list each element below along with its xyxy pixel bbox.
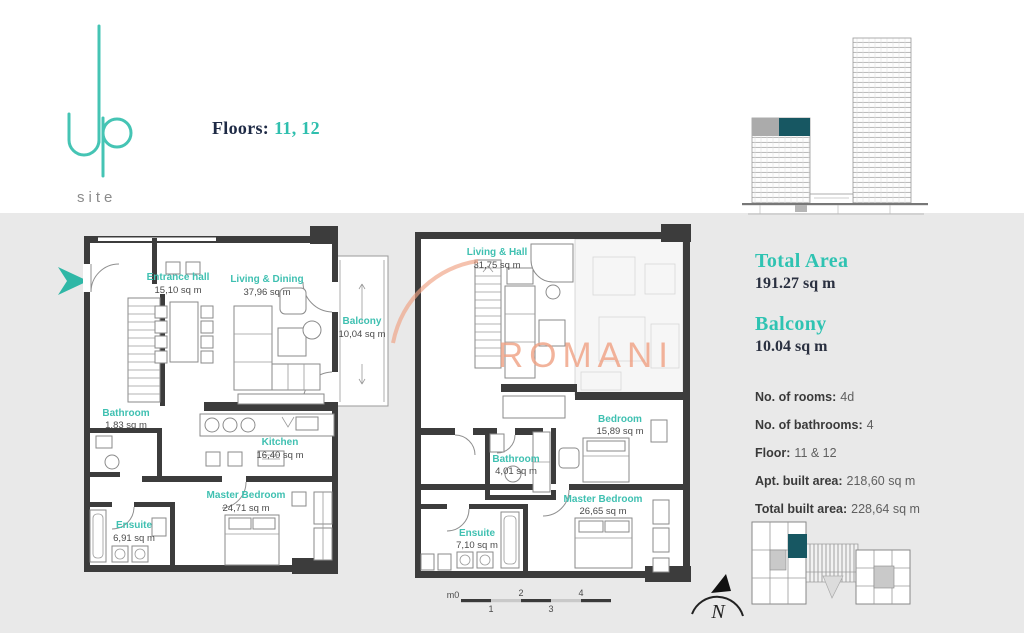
room-area: 15,10 sq m [155,285,202,296]
detail-row-floor: Floor:11 & 12 [755,446,985,460]
scale-mark: 4 [578,588,583,598]
scale-mark: 3 [548,604,553,614]
tv-bench [238,394,324,404]
floors-label: Floors: [212,118,269,138]
site-triangle [823,576,843,598]
floors-heading: Floors:11, 12 [212,118,320,139]
left-building-footprint [752,522,807,604]
double-height-void [575,239,683,395]
detail-row-apt-built-area: Apt. built area:218,60 sq m [755,474,985,488]
detail-row-rooms: No. of rooms:4d [755,390,985,404]
landing [503,396,565,418]
basement-block [795,205,807,212]
logo-site-text: site [77,189,116,206]
scale-bar: m0 1 2 3 4 [443,583,623,615]
room-label: Master Bedroom [564,494,643,505]
room-area: 37,96 sq m [244,287,291,298]
room-label: Kitchen [262,437,299,448]
short-tower-top-band [752,118,779,136]
north-compass-icon: N [686,568,750,628]
armchair [559,448,579,468]
room-area: 16,40 sq m [257,450,304,461]
wardrobe [651,420,667,442]
room-label: Bedroom [598,414,642,425]
tall-tower [853,38,911,204]
highlighted-floors-marker [779,118,810,136]
detail-value: 4d [840,390,854,404]
summary-panel: Total Area 191.27 sq m Balcony 10.04 sq … [755,250,985,530]
room-label: Bathroom [102,408,149,419]
scale-mark: 1 [488,604,493,614]
floor-plan-upper: Living & Hall 31,75 sq m Bedroom 15,89 s… [413,222,697,588]
floor-plan-lower: Entrance hall 15,10 sq m Living & Dining… [82,224,394,578]
site-key-plan [748,506,948,622]
logo-p-bowl [103,119,131,147]
room-area: 7,10 sq m [456,540,498,551]
floors-value: 11, 12 [274,118,320,138]
detail-value: 11 & 12 [794,446,836,460]
compass-needle [711,574,731,593]
room-label: Balcony [343,316,382,327]
room-area: 31,75 sq m [474,260,521,271]
room-label: Ensuite [459,528,496,539]
staircase [475,260,501,368]
coffee-table [278,328,306,356]
scale-mark: 2 [518,588,523,598]
room-area: 4,01 sq m [495,466,537,477]
building-elevation-drawing [740,28,932,218]
room-label: Master Bedroom [207,490,286,501]
balcony-value: 10.04 sq m [755,338,985,356]
right-building-footprint [856,550,910,604]
round-table [303,321,321,339]
apartment-location-marker [788,534,807,558]
detail-value: 4 [867,418,874,432]
room-area: 10,04 sq m [339,329,386,340]
ground-line [742,203,928,205]
detail-value: 218,60 sq m [847,474,916,488]
detail-label: No. of bathrooms: [755,418,863,432]
detail-row-bathrooms: No. of bathrooms:4 [755,418,985,432]
page: site Floors:11, 12 [0,0,1024,633]
detail-label: No. of rooms: [755,390,836,404]
room-area: 1,83 sq m [105,420,147,431]
coffee-table [539,320,565,346]
total-area-value: 191.27 sq m [755,275,985,293]
room-label: Living & Dining [230,274,303,285]
room-label: Entrance hall [147,272,210,283]
logo-u-stroke [69,114,99,155]
balcony-heading: Balcony [755,313,985,336]
detail-label: Floor: [755,446,790,460]
room-area: 26,65 sq m [580,506,627,517]
upsite-logo-icon: site [55,22,147,212]
room-area: 24,71 sq m [223,503,270,514]
detail-label: Apt. built area: [755,474,843,488]
room-area: 6,91 sq m [113,533,155,544]
details-list: No. of rooms:4d No. of bathrooms:4 Floor… [755,390,985,516]
room-label: Bathroom [492,454,539,465]
podium [810,194,853,204]
north-label: N [710,601,726,623]
room-label: Living & Hall [467,247,528,258]
room-area: 15,89 sq m [597,426,644,437]
room-label: Ensuite [116,520,153,531]
piano-stool [546,285,560,299]
total-area-heading: Total Area [755,250,985,273]
scale-zero-label: m0 [447,590,460,600]
